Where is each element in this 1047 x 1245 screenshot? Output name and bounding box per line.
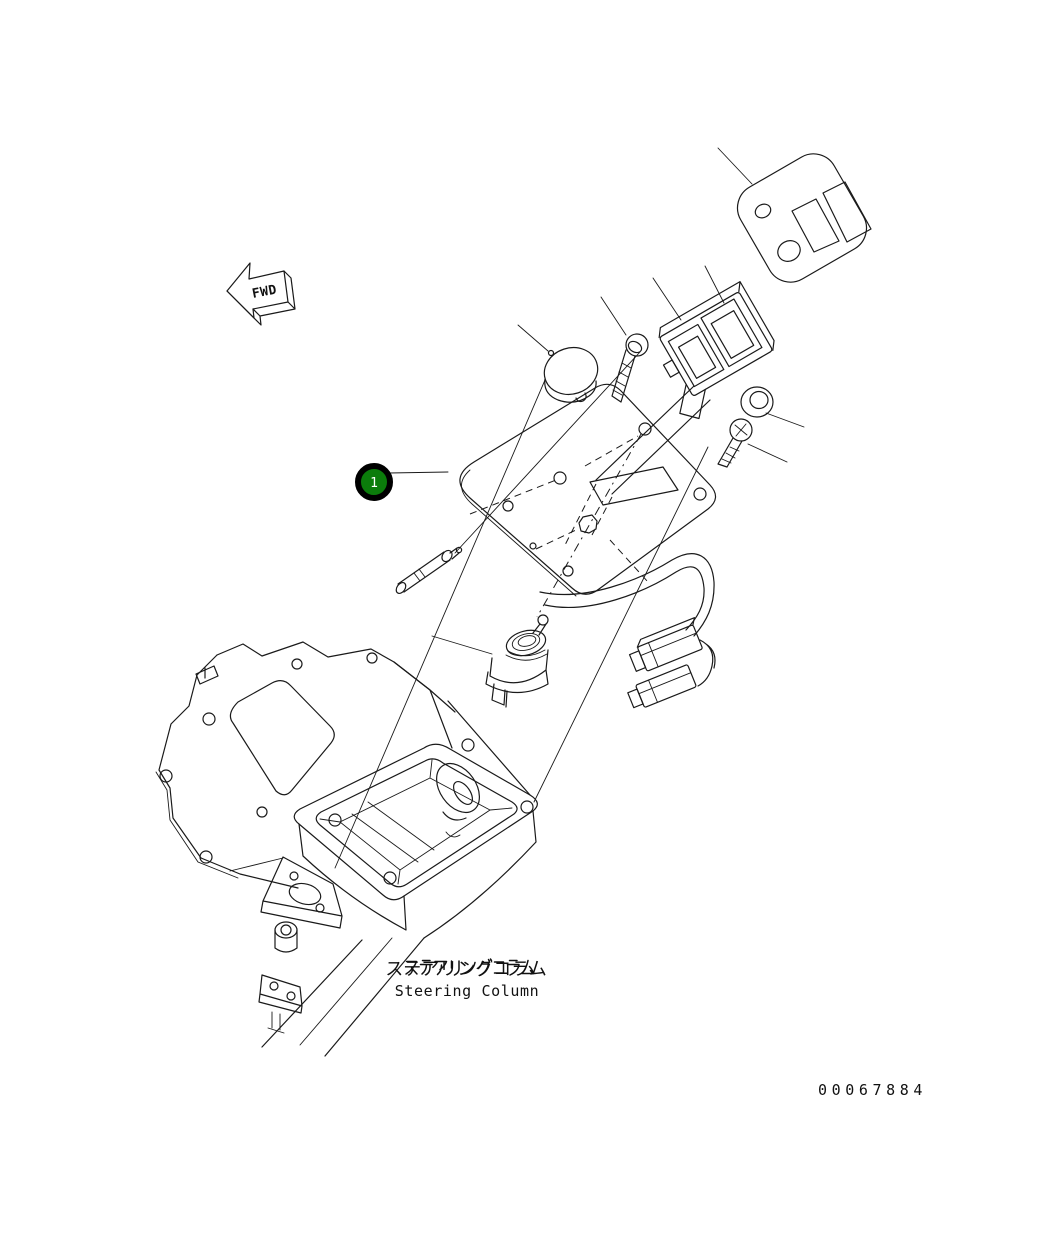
- caption-japanese-glyphs: ステアリングコラム: [385, 959, 546, 980]
- caption-english: Steering Column: [395, 982, 539, 1000]
- leader-line: [432, 636, 492, 654]
- leader-line: [389, 472, 448, 473]
- leader-line: [653, 278, 681, 320]
- alignment-line: [335, 380, 545, 868]
- diagram-page: FWD: [0, 0, 1047, 1245]
- fwd-arrow-icon: FWD: [227, 263, 295, 325]
- alignment-line: [455, 352, 640, 553]
- alignment-line: [534, 447, 708, 802]
- panel-part: [460, 384, 716, 617]
- leader-line: [718, 148, 752, 184]
- leader-line: [766, 413, 804, 427]
- leader-line: [601, 297, 626, 335]
- rocker-switch-part: [638, 266, 789, 425]
- pin-part: [394, 547, 461, 595]
- ignition-switch-part: [432, 615, 548, 707]
- screw-b-part: [718, 419, 787, 467]
- leader-line: [705, 266, 724, 303]
- leader-line: [518, 325, 548, 351]
- parts-diagram: FWD: [0, 0, 1047, 1245]
- leader-line: [748, 444, 787, 462]
- hidden-line: [470, 480, 556, 514]
- balloon-number: 1: [370, 476, 378, 491]
- drawing-number: 00067884: [818, 1081, 927, 1099]
- axis-line: [537, 434, 641, 617]
- washer-part: [741, 387, 804, 427]
- fwd-label: FWD: [251, 282, 278, 301]
- hidden-line: [585, 436, 638, 466]
- cover-plate-part: [718, 145, 875, 291]
- connector-1: [626, 618, 707, 675]
- part-balloon-1[interactable]: 1: [358, 466, 448, 498]
